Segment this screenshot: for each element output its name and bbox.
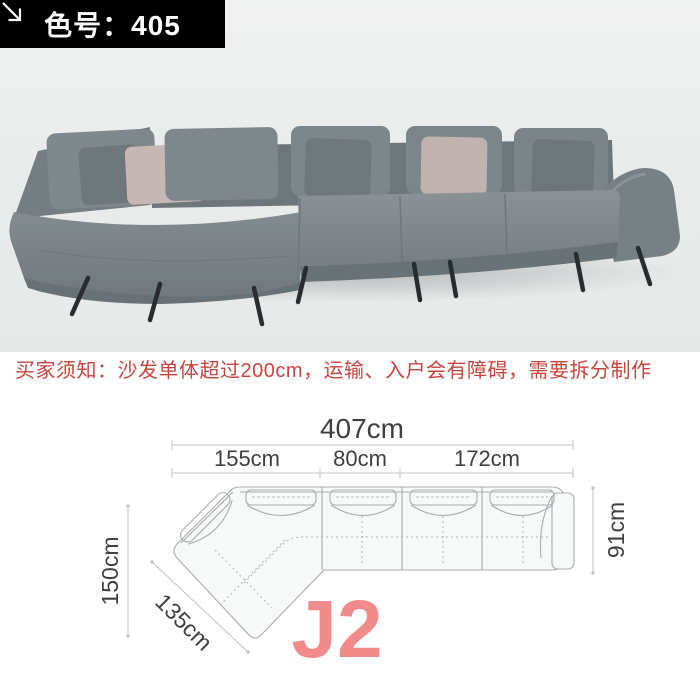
dim-chaise-label: 135cm xyxy=(150,588,217,655)
sofa-illustration xyxy=(0,0,700,352)
dim-left-depth: 150cm xyxy=(97,504,130,637)
dim-left-depth-label: 150cm xyxy=(97,536,123,605)
dimension-diagram: 407cm 155cm 80cm 172cm 150cm 135cm xyxy=(0,400,700,700)
sofa-photo: 色号：405 xyxy=(0,0,700,352)
dim-section-1-label: 155cm xyxy=(214,446,280,471)
model-label: J2 xyxy=(291,584,382,675)
badge-label: 色号：405 xyxy=(44,4,181,44)
plan-right-armrest xyxy=(552,493,574,569)
dim-right-depth: 91cm xyxy=(591,486,629,574)
dim-sections: 155cm 80cm 172cm xyxy=(172,446,573,478)
dim-section-2-label: 80cm xyxy=(333,446,387,471)
buyer-notice: 买家须知：沙发单体超过200cm，运输、入户会有障碍，需要拆分制作 xyxy=(0,356,700,390)
pink-pillow-right xyxy=(420,136,487,195)
color-code-badge: 色号：405 xyxy=(0,0,225,48)
dim-section-3-label: 172cm xyxy=(454,446,520,471)
dim-total-label: 407cm xyxy=(320,413,404,444)
arrow-down-right-icon xyxy=(0,0,24,24)
product-image: 色号：405 买家须知：沙发单体超过200cm，运输、入户会有障碍，需要拆分制作… xyxy=(0,0,700,700)
dim-right-depth-label: 91cm xyxy=(603,502,629,558)
dim-total: 407cm xyxy=(172,413,573,450)
